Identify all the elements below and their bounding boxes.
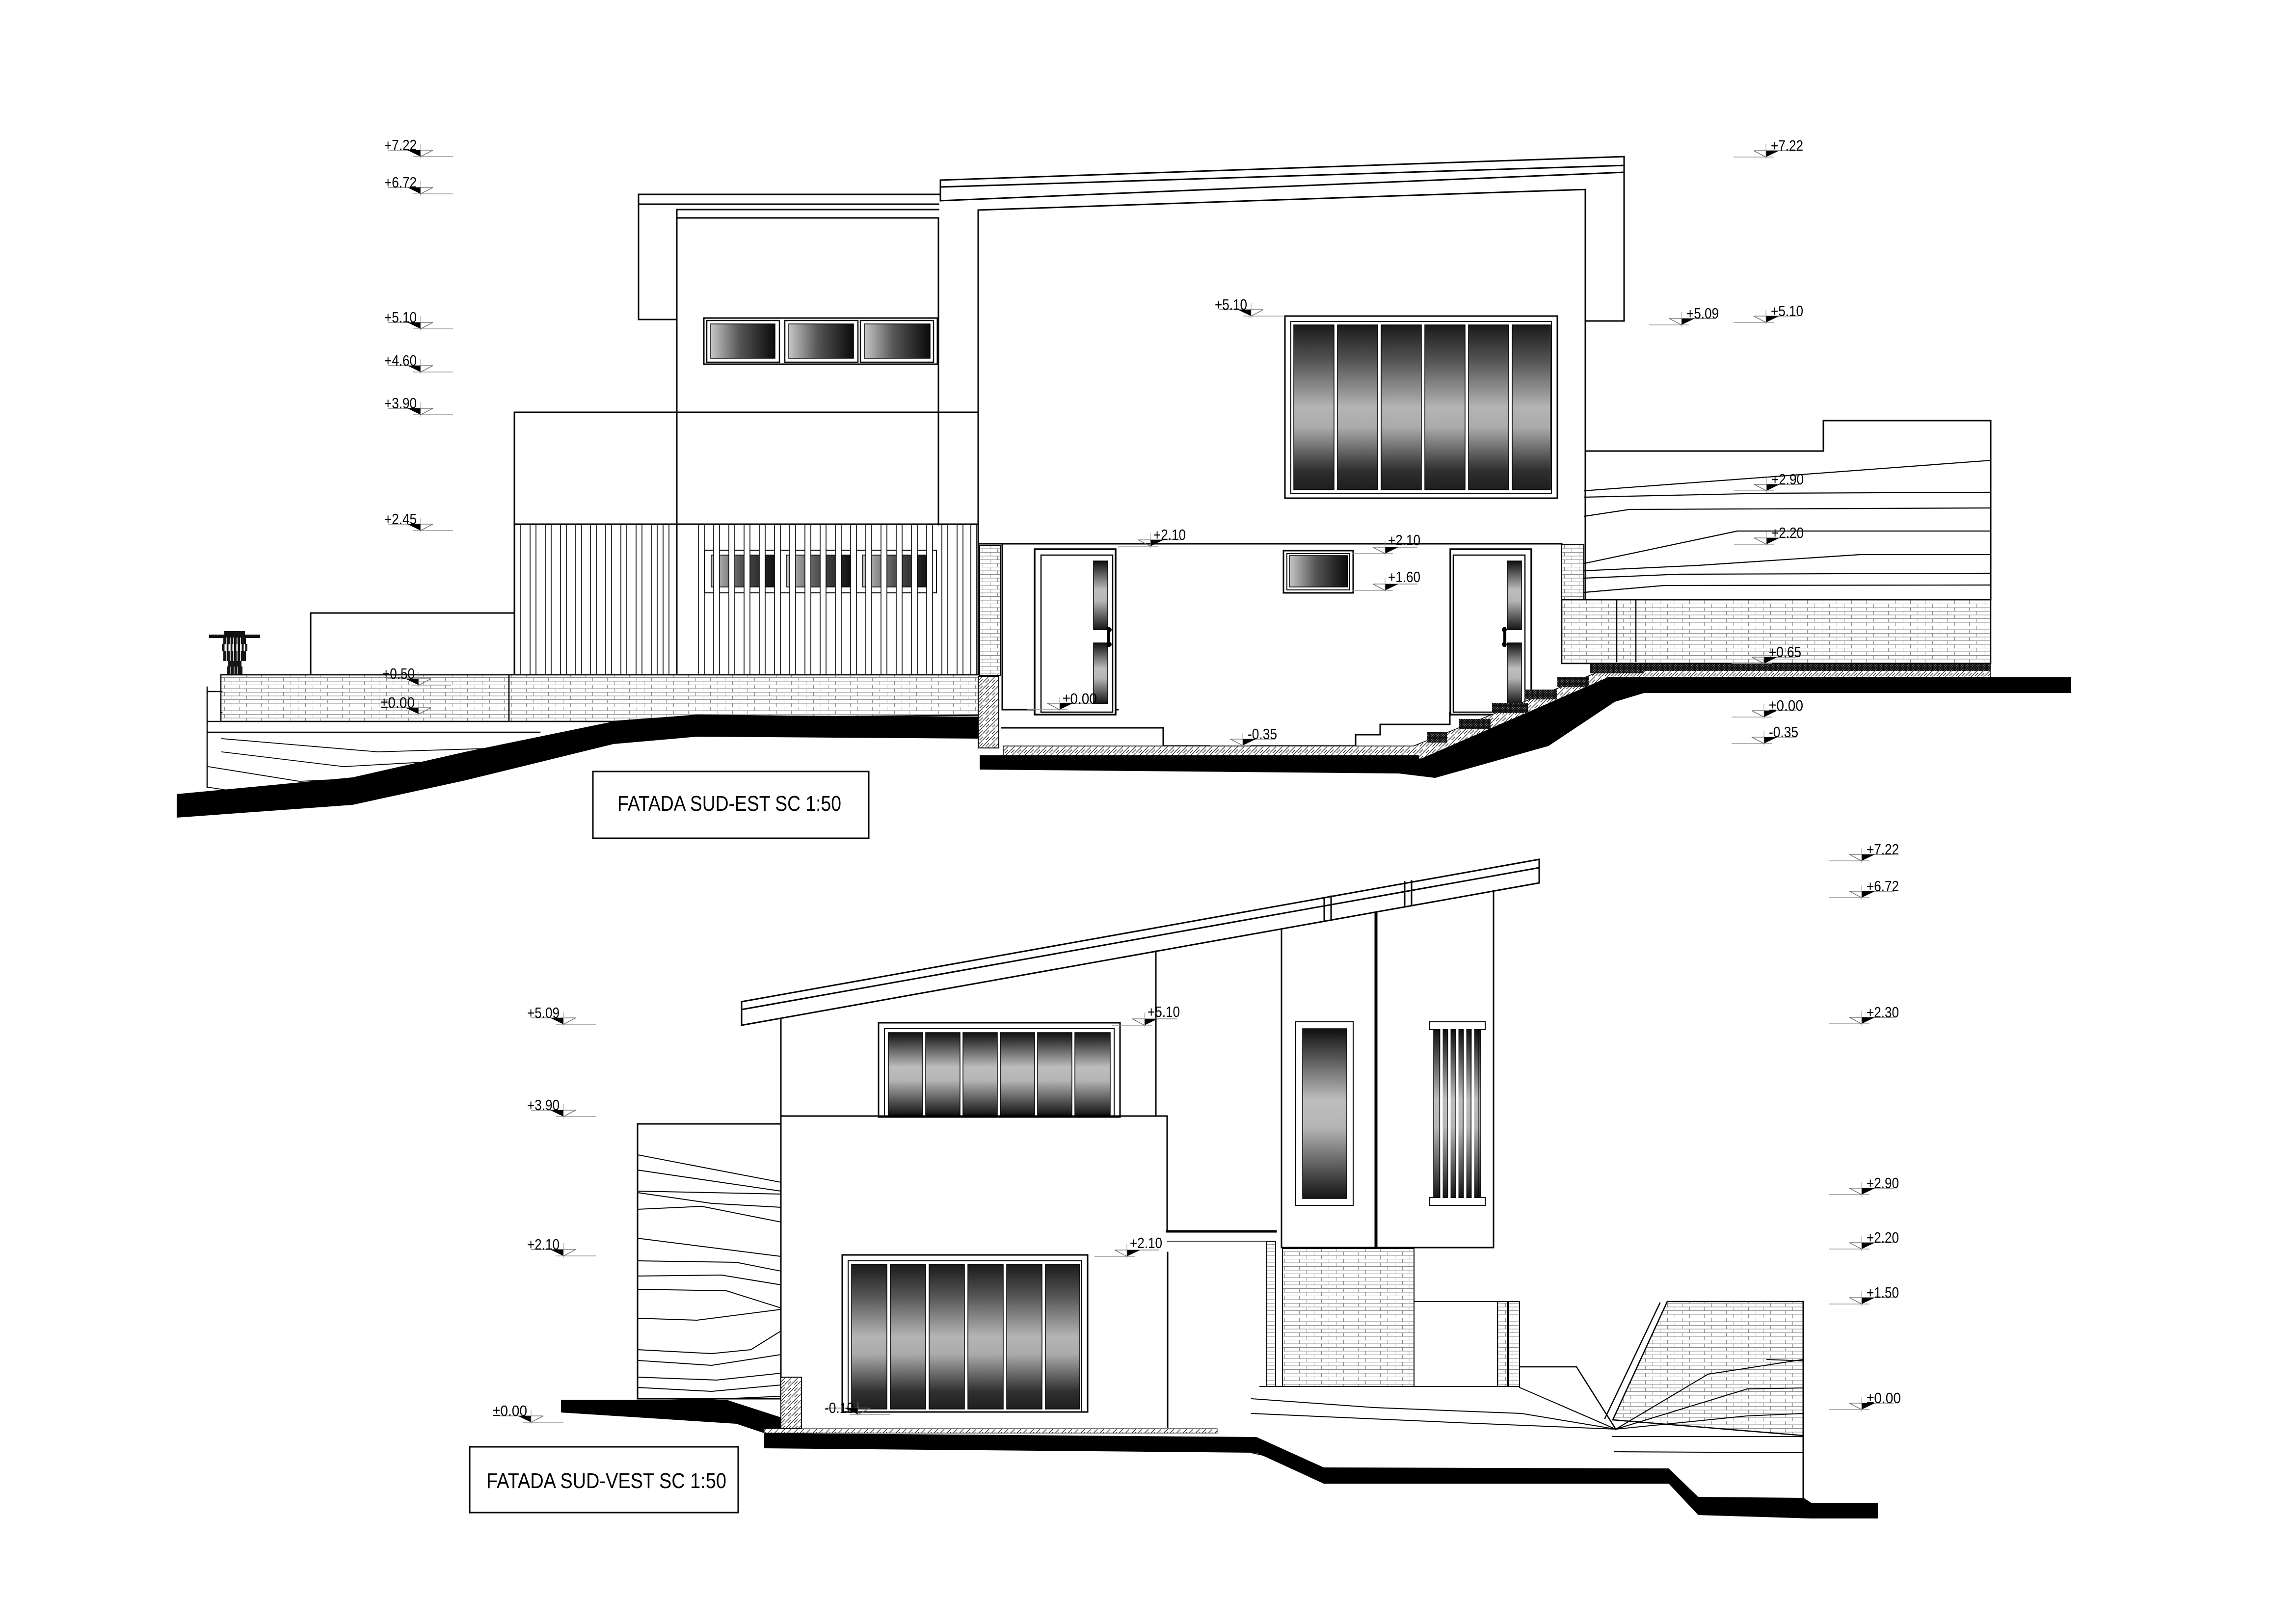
svg-text:±0.00: ±0.00 xyxy=(380,694,415,711)
svg-text:-0.35: -0.35 xyxy=(1769,723,1798,741)
svg-text:+2.10: +2.10 xyxy=(1153,526,1186,543)
svg-text:+5.09: +5.09 xyxy=(527,1004,560,1021)
svg-text:+7.22: +7.22 xyxy=(384,136,417,154)
svg-text:+5.10: +5.10 xyxy=(1771,302,1803,319)
svg-text:+2.10: +2.10 xyxy=(527,1236,560,1253)
svg-text:+2.20: +2.20 xyxy=(1771,524,1804,541)
svg-text:±0.00: ±0.00 xyxy=(1867,1389,1901,1407)
svg-text:+2.20: +2.20 xyxy=(1867,1229,1899,1246)
svg-text:+0.65: +0.65 xyxy=(1769,643,1801,661)
svg-text:+2.30: +2.30 xyxy=(1867,1004,1899,1021)
svg-text:-0.10: -0.10 xyxy=(825,1399,854,1416)
svg-text:+5.09: +5.09 xyxy=(1686,305,1719,322)
svg-text:+5.10: +5.10 xyxy=(384,309,417,326)
svg-text:±0.00: ±0.00 xyxy=(493,1402,527,1419)
svg-text:FATADA SUD-VEST SC 1:50: FATADA SUD-VEST SC 1:50 xyxy=(486,1469,726,1493)
svg-text:+0.50: +0.50 xyxy=(382,665,415,682)
svg-text:+1.50: +1.50 xyxy=(1867,1284,1899,1301)
svg-text:+1.60: +1.60 xyxy=(1388,568,1420,586)
svg-text:+2.10: +2.10 xyxy=(1130,1234,1162,1251)
svg-text:FATADA SUD-EST SC 1:50: FATADA SUD-EST SC 1:50 xyxy=(617,792,841,816)
svg-text:+3.90: +3.90 xyxy=(527,1096,560,1114)
svg-text:+3.90: +3.90 xyxy=(384,395,417,412)
svg-text:+2.10: +2.10 xyxy=(1388,532,1420,549)
svg-text:+6.72: +6.72 xyxy=(384,174,417,191)
svg-text:+5.10: +5.10 xyxy=(1148,1003,1180,1020)
svg-text:±0.00: ±0.00 xyxy=(1063,690,1097,707)
svg-text:+2.45: +2.45 xyxy=(384,510,417,528)
svg-text:+4.60: +4.60 xyxy=(384,352,417,369)
svg-text:+6.72: +6.72 xyxy=(1867,878,1899,895)
svg-text:+2.90: +2.90 xyxy=(1867,1174,1899,1192)
svg-text:+2.90: +2.90 xyxy=(1771,471,1804,488)
svg-text:+7.22: +7.22 xyxy=(1867,841,1899,858)
svg-text:+7.22: +7.22 xyxy=(1771,137,1803,154)
svg-text:±0.00: ±0.00 xyxy=(1769,697,1803,714)
svg-text:-0.35: -0.35 xyxy=(1248,725,1277,743)
svg-text:+5.10: +5.10 xyxy=(1215,296,1247,313)
